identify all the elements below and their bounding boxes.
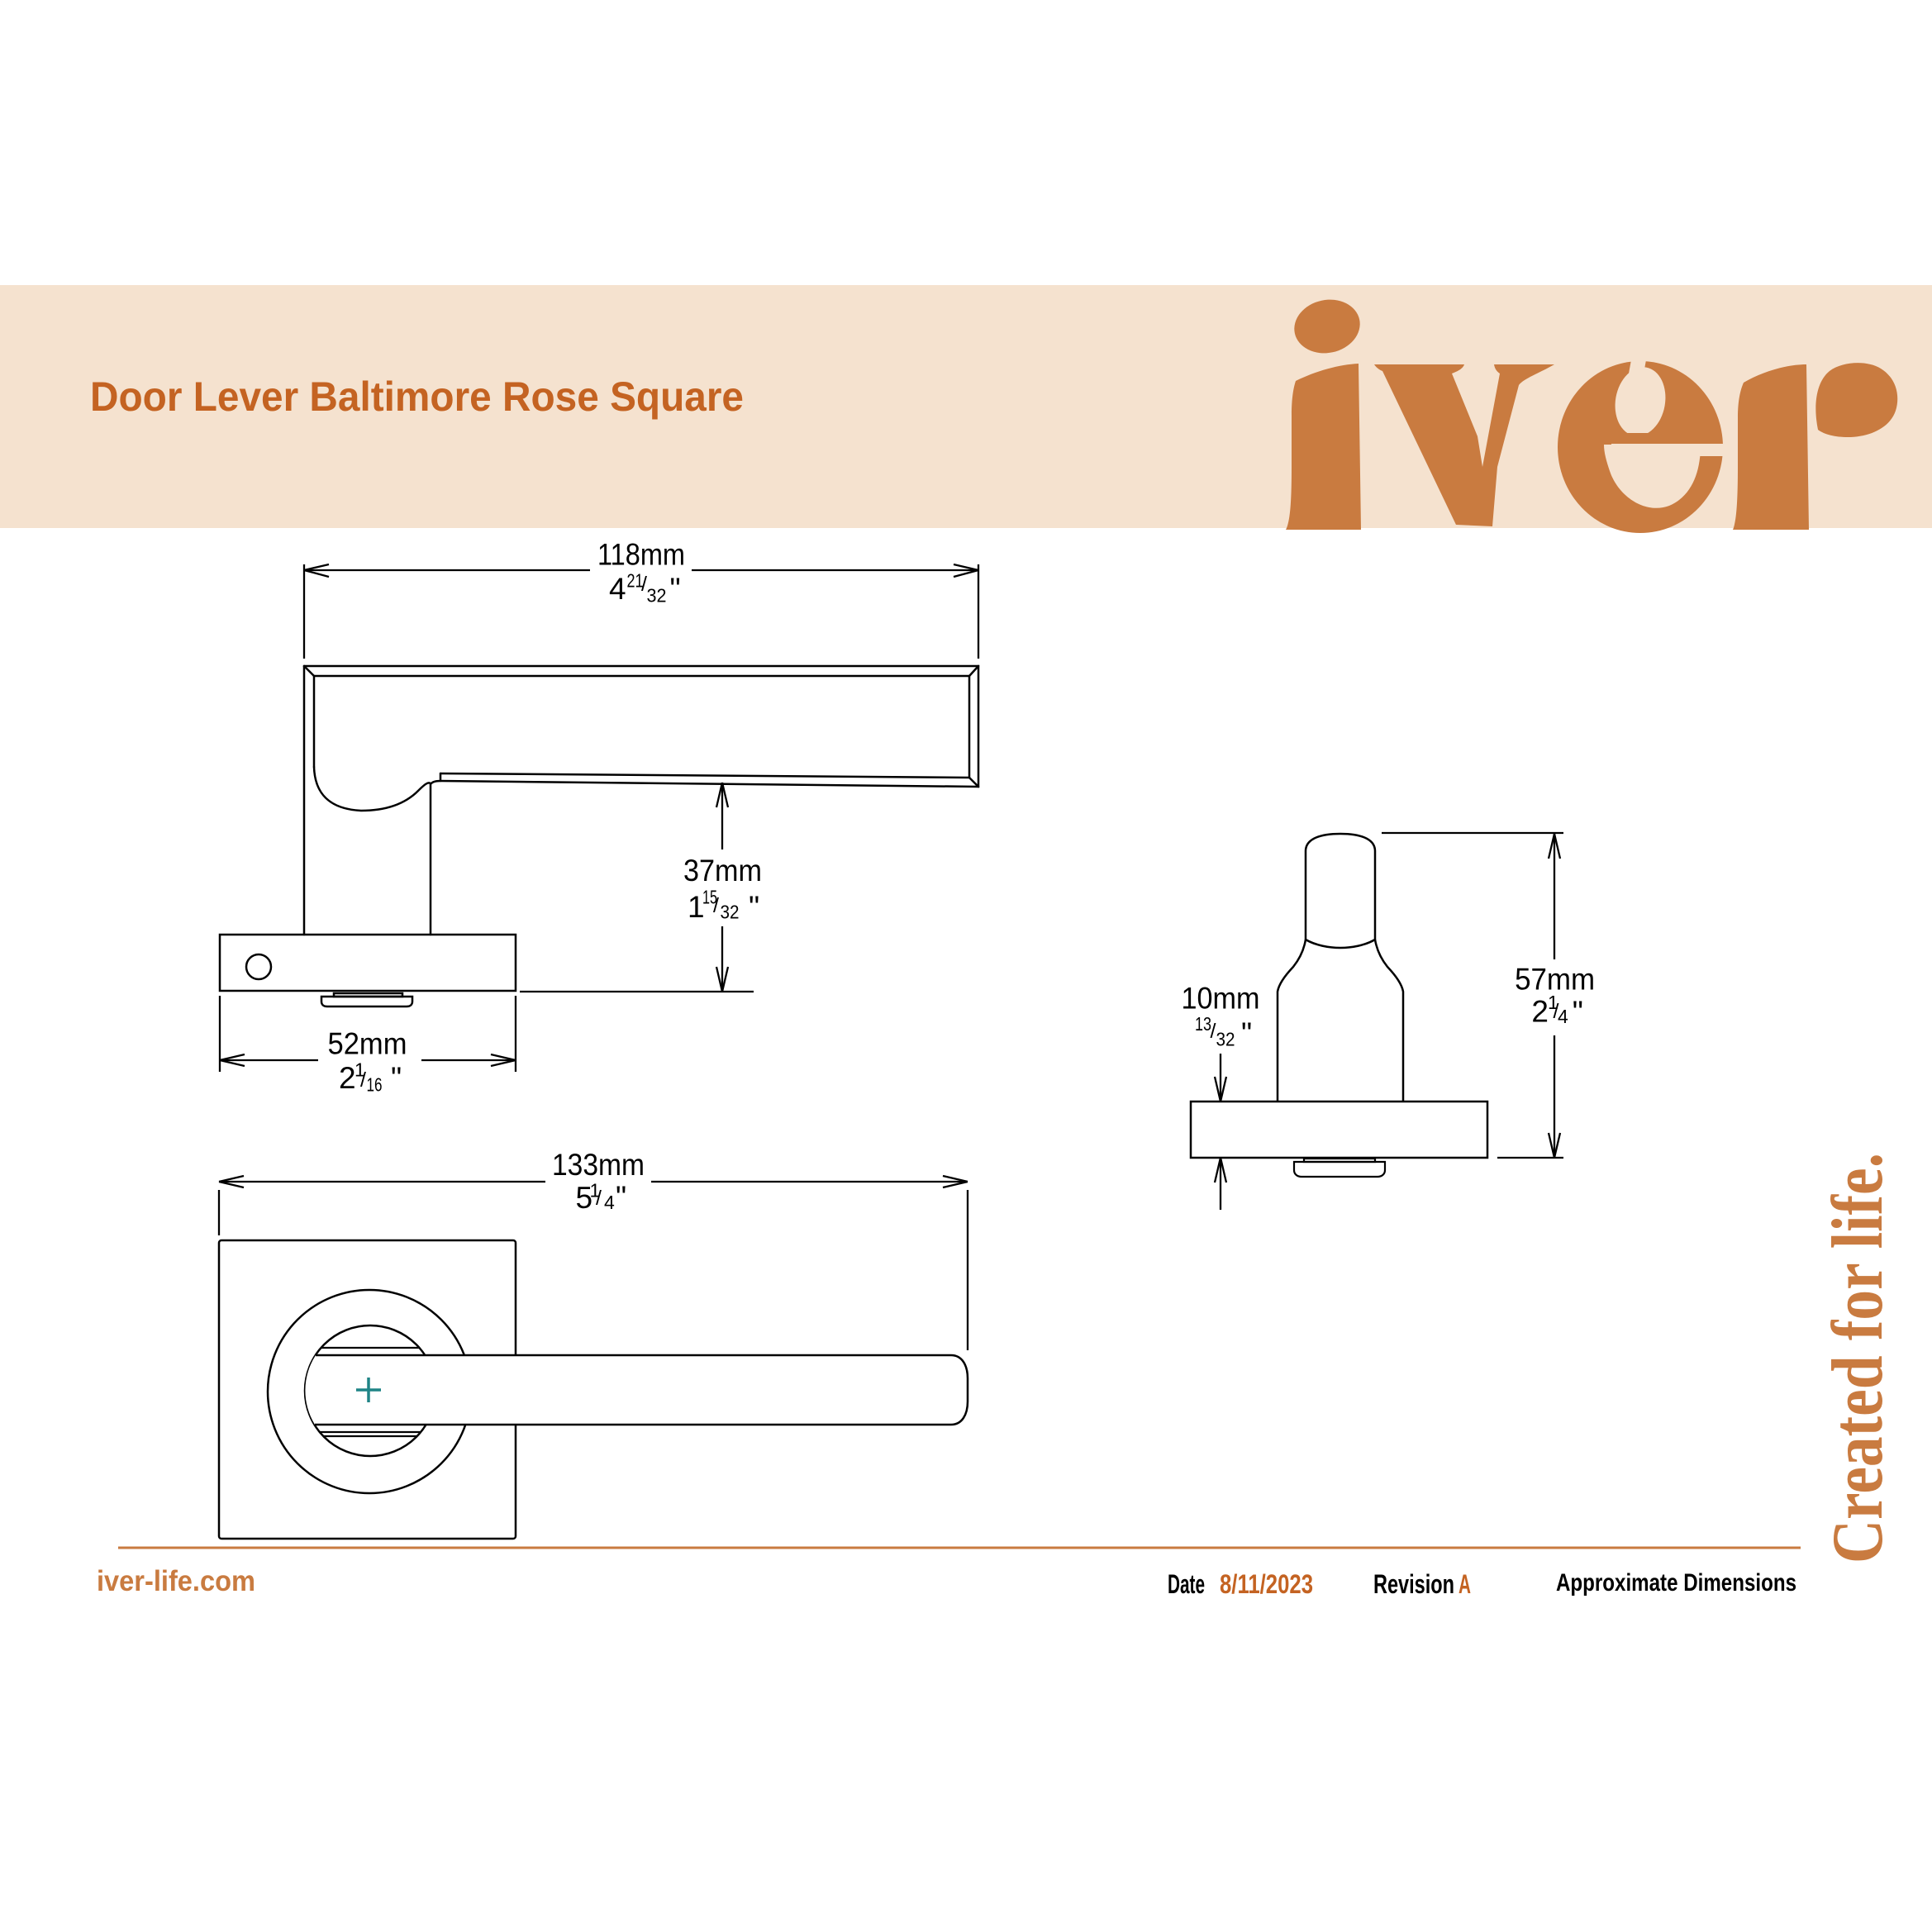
svg-text:Created for life.: Created for life. <box>1818 1153 1898 1563</box>
svg-text:": " <box>616 1180 626 1214</box>
svg-text:A: A <box>1459 1569 1471 1599</box>
svg-text:": " <box>391 1061 402 1095</box>
svg-text:32: 32 <box>647 585 667 607</box>
svg-text:Door Lever Baltimore Rose Squa: Door Lever Baltimore Rose Square <box>90 374 744 420</box>
svg-text:": " <box>749 890 759 924</box>
svg-text:Date: Date <box>1168 1569 1205 1599</box>
svg-text:/: / <box>596 1187 602 1210</box>
svg-text:4: 4 <box>609 572 626 606</box>
svg-text:Approximate Dimensions: Approximate Dimensions <box>1556 1569 1796 1597</box>
svg-text:32: 32 <box>1216 1029 1235 1050</box>
svg-text:133mm: 133mm <box>552 1148 645 1182</box>
svg-text:37mm: 37mm <box>683 854 762 887</box>
svg-text:": " <box>1241 1016 1252 1050</box>
svg-text:8/11/2023: 8/11/2023 <box>1220 1569 1313 1599</box>
svg-text:/: / <box>713 894 719 917</box>
svg-text:": " <box>670 572 681 606</box>
svg-text:10mm: 10mm <box>1182 982 1260 1016</box>
svg-text:iver-life.com: iver-life.com <box>97 1565 255 1597</box>
svg-text:4: 4 <box>604 1192 615 1213</box>
svg-text:13: 13 <box>1195 1013 1211 1035</box>
svg-text:Revision: Revision <box>1373 1569 1454 1599</box>
svg-text:4: 4 <box>1558 1006 1568 1027</box>
svg-text:/: / <box>1211 1020 1216 1043</box>
svg-text:16: 16 <box>367 1073 383 1095</box>
svg-text:32: 32 <box>721 902 740 923</box>
svg-text:52mm: 52mm <box>328 1027 407 1061</box>
svg-text:118mm: 118mm <box>597 538 685 572</box>
svg-text:2: 2 <box>1531 995 1549 1029</box>
svg-text:": " <box>1573 995 1583 1029</box>
svg-text:/: / <box>360 1068 366 1092</box>
svg-text:2: 2 <box>339 1061 356 1095</box>
